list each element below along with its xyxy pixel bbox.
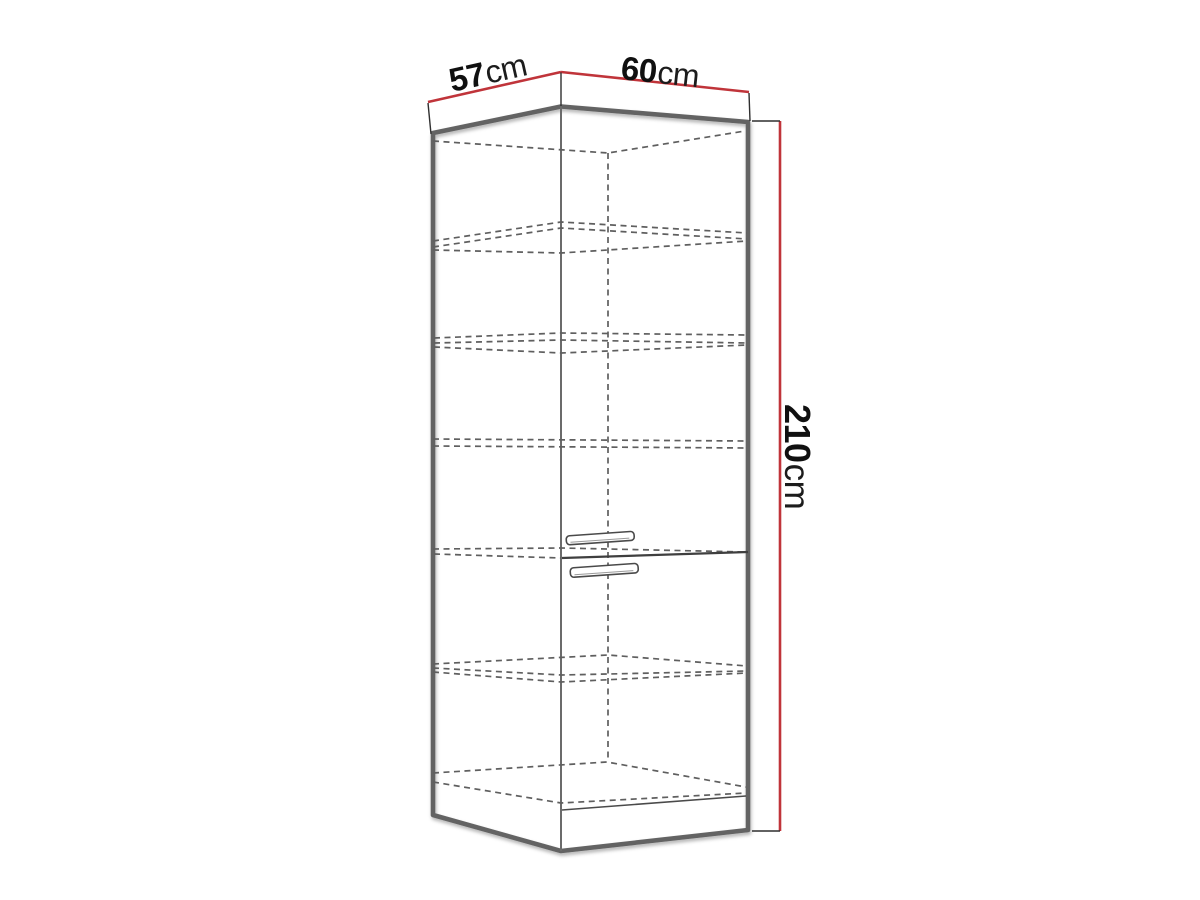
lower-door-handle: [570, 563, 638, 577]
cabinet-body: [433, 107, 748, 852]
cabinet-dimension-diagram: 57cm 60cm 210cm: [0, 0, 1200, 900]
shelf-5-dashed: [433, 655, 747, 682]
shelf-3-dashed: [433, 439, 747, 448]
shelf-2-dashed: [434, 333, 747, 353]
shelf-1-dashed: [433, 222, 747, 253]
bottom-panel-dashed: [433, 762, 746, 803]
upper-door-handle: [566, 531, 634, 545]
dimension-extension-lines: [428, 73, 780, 832]
cabinet-outline: [433, 107, 748, 852]
door-divider-line: [562, 552, 748, 558]
diagram-canvas: 57cm 60cm 210cm: [0, 0, 1200, 900]
dimension-lines: [428, 72, 780, 831]
depth-label: 57cm: [445, 46, 530, 99]
top-panel-dashed-edges: [433, 131, 745, 153]
width-label: 60cm: [619, 49, 701, 94]
height-label: 210cm: [777, 404, 818, 509]
